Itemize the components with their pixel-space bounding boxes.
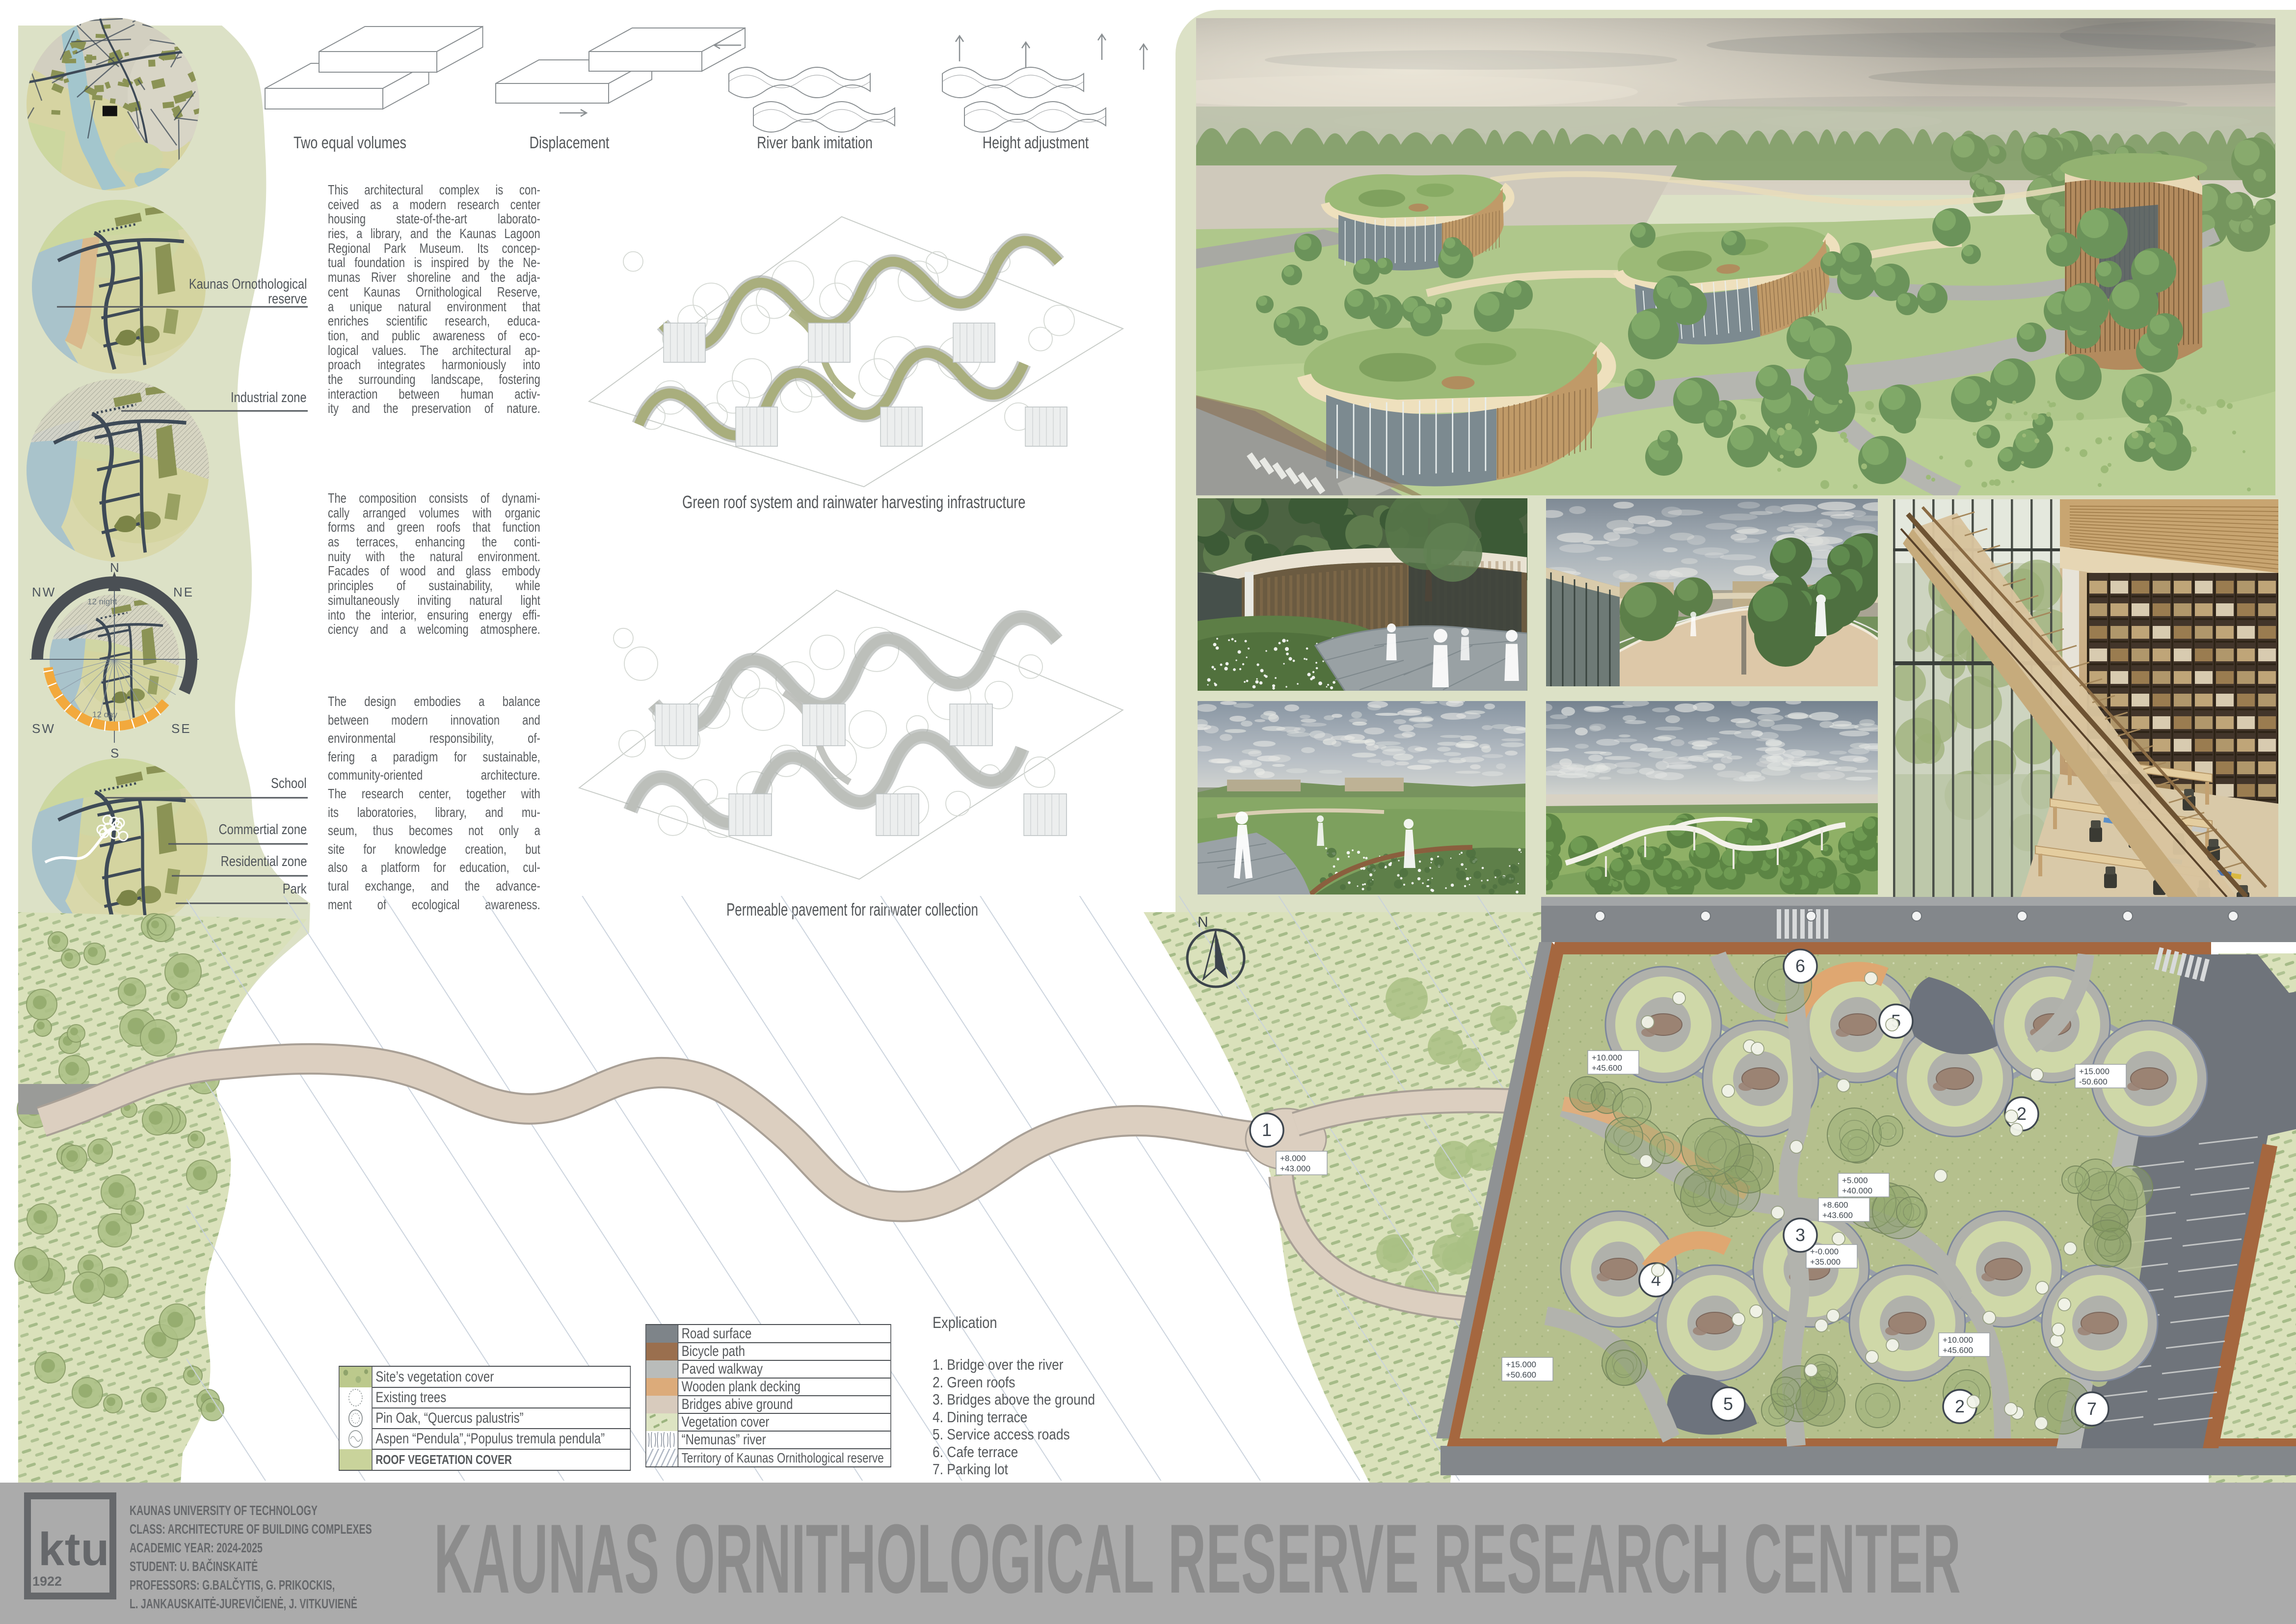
svg-text:2: 2 bbox=[2017, 1104, 2027, 1124]
svg-text:+50.600: +50.600 bbox=[1506, 1370, 1536, 1380]
svg-text:+15.000: +15.000 bbox=[1506, 1360, 1536, 1369]
svg-text:+10.000: +10.000 bbox=[1943, 1335, 1973, 1345]
svg-text:+43.600: +43.600 bbox=[1822, 1211, 1853, 1220]
svg-text:N: N bbox=[110, 560, 121, 575]
svg-text:+5.000: +5.000 bbox=[1842, 1176, 1868, 1185]
svg-text:+45.600: +45.600 bbox=[1943, 1346, 1973, 1355]
svg-text:N: N bbox=[1198, 914, 1208, 930]
svg-text:+40.000: +40.000 bbox=[1842, 1186, 1872, 1195]
svg-text:SE: SE bbox=[171, 721, 191, 736]
svg-text:SW: SW bbox=[32, 721, 55, 736]
svg-text:12 night: 12 night bbox=[87, 597, 117, 606]
svg-text:3: 3 bbox=[1795, 1225, 1805, 1245]
svg-text:5: 5 bbox=[1723, 1394, 1733, 1414]
svg-text:1: 1 bbox=[1262, 1120, 1272, 1140]
svg-text:NW: NW bbox=[32, 585, 56, 599]
svg-text:+10.000: +10.000 bbox=[1592, 1053, 1622, 1062]
svg-text:+8.000: +8.000 bbox=[1280, 1154, 1306, 1163]
svg-text:+15.000: +15.000 bbox=[2079, 1067, 2109, 1076]
svg-text:2: 2 bbox=[1955, 1396, 1965, 1416]
svg-text:S: S bbox=[110, 746, 120, 760]
svg-text:+8.600: +8.600 bbox=[1822, 1200, 1848, 1210]
svg-text:+45.600: +45.600 bbox=[1592, 1063, 1622, 1073]
svg-text:+-0.000: +-0.000 bbox=[1810, 1247, 1839, 1256]
svg-text:+43.000: +43.000 bbox=[1280, 1164, 1310, 1173]
svg-text:NE: NE bbox=[173, 585, 194, 599]
svg-text:+35.000: +35.000 bbox=[1810, 1257, 1841, 1267]
svg-text:6: 6 bbox=[1795, 956, 1805, 976]
svg-text:7: 7 bbox=[2087, 1399, 2097, 1419]
svg-text:-50.600: -50.600 bbox=[2079, 1077, 2108, 1086]
svg-text:12 day: 12 day bbox=[92, 710, 118, 719]
